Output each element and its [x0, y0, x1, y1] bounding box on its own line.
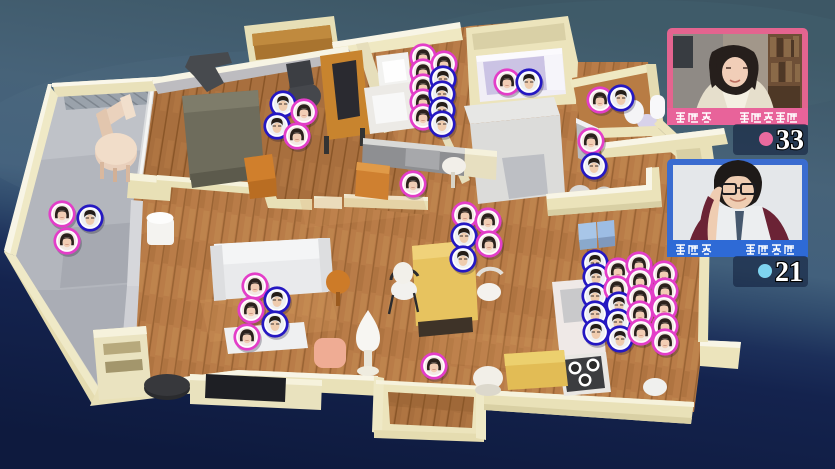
svg-text:21: 21 — [775, 257, 803, 288]
svg-text:33: 33 — [776, 125, 804, 156]
